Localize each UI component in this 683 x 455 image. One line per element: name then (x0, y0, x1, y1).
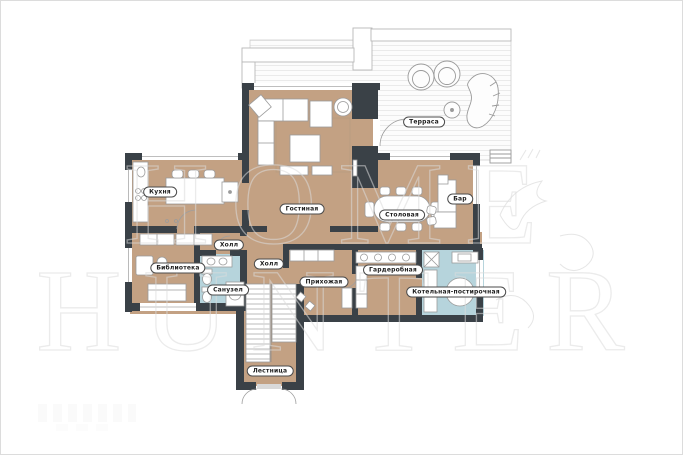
room-label-library: Библиотека (150, 263, 205, 274)
room-label-entry: Прихожая (300, 277, 349, 288)
sketch-watermark (496, 149, 593, 328)
coffee-table-icon (290, 135, 320, 162)
room-label-stairs: Лестница (247, 366, 294, 377)
entrance-threshold (257, 384, 281, 389)
toilet-icon (203, 274, 212, 285)
vanity (202, 256, 232, 267)
room-label-hall-small: Холл (214, 240, 244, 251)
room-label-hall: Холл (254, 259, 284, 270)
bar-stool-icon (426, 216, 436, 225)
lounge-chair-icon (408, 64, 434, 90)
closet (356, 252, 416, 263)
room-label-living: Гостиная (280, 204, 325, 215)
floor-lamp-icon (334, 98, 352, 116)
room-label-wardrobe: Гардеробная (363, 265, 423, 276)
bar-stool-icon (188, 170, 199, 178)
room-label-kitchen: Кухня (143, 187, 177, 198)
closet (290, 250, 334, 261)
tv-icon (353, 160, 357, 176)
bar-stool-icon (426, 205, 436, 215)
room-label-boiler: Котельная-постирочная (406, 287, 506, 298)
room-label-dining: Столовая (379, 210, 425, 221)
room-label-bar: Бар (447, 194, 473, 205)
sofa-icon (148, 284, 186, 301)
floor-plan-drawing (0, 0, 683, 455)
bar-stool-icon (204, 170, 215, 178)
floor-plan-canvas: HOME HUNTER Кухня Гостиная Столовая Бар … (0, 0, 683, 455)
bar-stool-icon (172, 170, 183, 178)
room-label-bathroom: Санузел (207, 285, 249, 296)
armchair-icon (310, 101, 332, 127)
lounge-chair-icon (434, 61, 460, 87)
room-label-terrace: Терраса (403, 117, 445, 128)
